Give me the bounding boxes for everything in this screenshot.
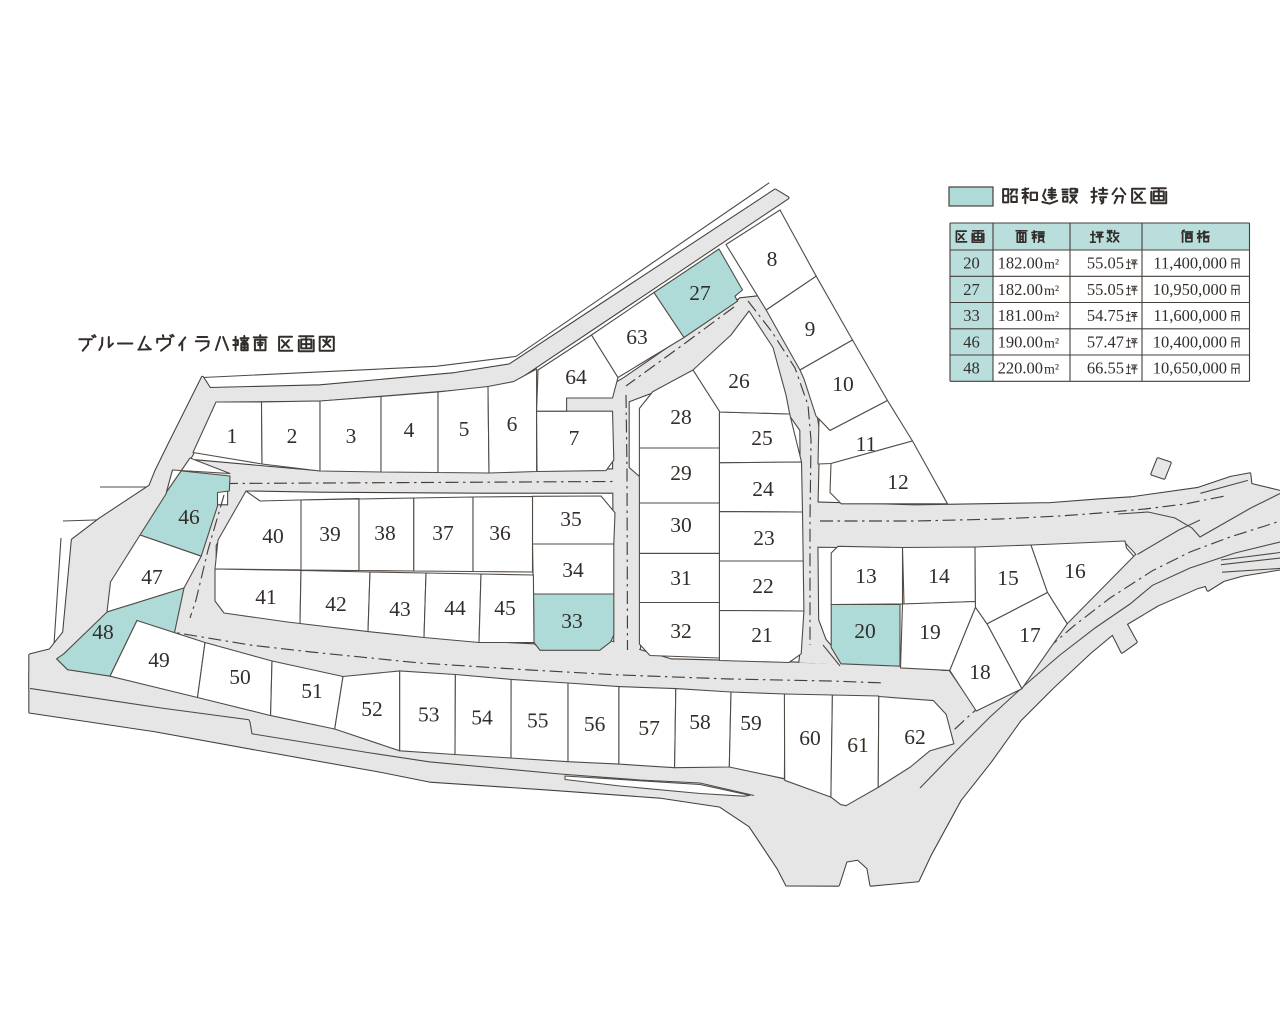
svg-text:48: 48 <box>963 359 980 378</box>
svg-text:49: 49 <box>148 648 170 672</box>
svg-text:10: 10 <box>832 372 854 396</box>
svg-text:7: 7 <box>569 426 580 450</box>
svg-text:182.00: 182.00 <box>998 254 1043 273</box>
svg-text:12: 12 <box>887 470 909 494</box>
svg-text:17: 17 <box>1019 623 1041 647</box>
svg-text:10,400,000: 10,400,000 <box>1153 332 1227 351</box>
svg-text:32: 32 <box>670 619 692 643</box>
svg-text:38: 38 <box>374 521 396 545</box>
svg-text:31: 31 <box>670 566 692 590</box>
svg-text:20: 20 <box>854 619 876 643</box>
svg-text:220.00: 220.00 <box>998 359 1043 378</box>
svg-text:43: 43 <box>389 597 411 621</box>
svg-text:3: 3 <box>346 424 357 448</box>
svg-text:5: 5 <box>459 417 470 441</box>
svg-text:57.47: 57.47 <box>1087 332 1124 351</box>
svg-text:28: 28 <box>670 405 692 429</box>
svg-text:66.55: 66.55 <box>1087 359 1124 378</box>
svg-text:11,600,000: 11,600,000 <box>1153 306 1227 325</box>
svg-text:27: 27 <box>963 280 980 299</box>
svg-text:36: 36 <box>489 521 511 545</box>
svg-text:24: 24 <box>752 477 774 501</box>
svg-text:10,650,000: 10,650,000 <box>1153 359 1227 378</box>
svg-text:57: 57 <box>638 716 660 740</box>
svg-text:10,950,000: 10,950,000 <box>1153 280 1227 299</box>
svg-text:1: 1 <box>227 424 238 448</box>
svg-text:41: 41 <box>255 585 277 609</box>
svg-text:18: 18 <box>969 660 991 684</box>
svg-text:4: 4 <box>404 418 415 442</box>
svg-text:23: 23 <box>753 526 775 550</box>
svg-text:37: 37 <box>432 521 454 545</box>
svg-text:25: 25 <box>751 426 773 450</box>
svg-text:58: 58 <box>689 710 711 734</box>
svg-text:63: 63 <box>626 325 648 349</box>
svg-text:30: 30 <box>670 513 692 537</box>
svg-text:47: 47 <box>141 565 163 589</box>
svg-text:m²: m² <box>1044 363 1059 378</box>
svg-text:51: 51 <box>301 679 323 703</box>
svg-text:42: 42 <box>325 592 347 616</box>
svg-text:16: 16 <box>1064 559 1086 583</box>
svg-text:52: 52 <box>361 697 383 721</box>
svg-text:15: 15 <box>997 566 1019 590</box>
svg-text:61: 61 <box>847 733 869 757</box>
svg-text:m²: m² <box>1044 310 1059 325</box>
svg-text:6: 6 <box>507 412 518 436</box>
svg-text:33: 33 <box>561 609 583 633</box>
svg-text:44: 44 <box>444 596 466 620</box>
svg-text:48: 48 <box>92 620 114 644</box>
svg-text:190.00: 190.00 <box>998 332 1043 351</box>
svg-text:55: 55 <box>527 709 549 733</box>
svg-text:19: 19 <box>919 620 941 644</box>
svg-text:20: 20 <box>963 254 980 273</box>
svg-text:2: 2 <box>287 424 298 448</box>
svg-text:60: 60 <box>799 726 821 750</box>
svg-text:27: 27 <box>689 281 711 305</box>
svg-text:34: 34 <box>562 558 584 582</box>
svg-text:54.75: 54.75 <box>1087 306 1124 325</box>
svg-text:m²: m² <box>1044 336 1059 351</box>
svg-text:64: 64 <box>565 365 587 389</box>
svg-text:50: 50 <box>229 665 251 689</box>
svg-text:m²: m² <box>1044 258 1059 273</box>
svg-text:m²: m² <box>1044 284 1059 299</box>
svg-text:45: 45 <box>494 596 516 620</box>
svg-text:62: 62 <box>904 725 926 749</box>
svg-text:35: 35 <box>560 507 582 531</box>
svg-text:53: 53 <box>418 703 440 727</box>
svg-text:59: 59 <box>740 711 762 735</box>
svg-text:14: 14 <box>928 564 950 588</box>
svg-text:54: 54 <box>471 706 493 730</box>
svg-text:46: 46 <box>178 505 200 529</box>
svg-text:22: 22 <box>752 574 774 598</box>
svg-text:8: 8 <box>767 247 778 271</box>
svg-text:9: 9 <box>805 317 816 341</box>
svg-text:40: 40 <box>262 524 284 548</box>
svg-text:55.05: 55.05 <box>1087 280 1124 299</box>
svg-text:39: 39 <box>319 522 341 546</box>
svg-text:181.00: 181.00 <box>998 306 1043 325</box>
svg-text:55.05: 55.05 <box>1087 254 1124 273</box>
svg-text:182.00: 182.00 <box>998 280 1043 299</box>
svg-text:56: 56 <box>584 712 606 736</box>
svg-text:29: 29 <box>670 461 692 485</box>
svg-text:21: 21 <box>751 623 773 647</box>
svg-text:46: 46 <box>963 332 980 351</box>
svg-text:33: 33 <box>963 306 980 325</box>
svg-text:13: 13 <box>855 564 877 588</box>
svg-text:11,400,000: 11,400,000 <box>1153 254 1227 273</box>
svg-text:26: 26 <box>728 369 750 393</box>
